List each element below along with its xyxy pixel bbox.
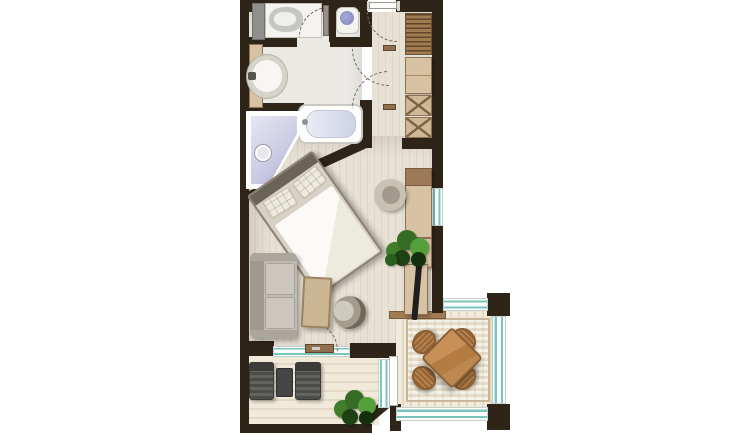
bathtub-basin xyxy=(306,110,356,138)
sofa-armrest xyxy=(250,330,297,338)
sofa-cushion xyxy=(265,263,295,295)
wall-bottom-left xyxy=(240,341,274,356)
floor-plan xyxy=(0,0,754,435)
wall-balcony-corner-tr xyxy=(487,293,510,316)
sun-lounger-back xyxy=(249,362,274,371)
potted-plant xyxy=(385,230,431,270)
lattice-cabinet-door xyxy=(405,95,432,116)
sofa-armrest xyxy=(250,253,297,261)
bathroom-door-leaf xyxy=(323,5,329,36)
plant-leaf xyxy=(359,411,373,425)
glazing-balcony-right xyxy=(492,316,506,404)
basin-faucet xyxy=(248,72,256,80)
work-table xyxy=(301,276,333,328)
wardrobe-hanging-rail xyxy=(405,13,432,55)
sofa-cushion xyxy=(265,297,295,329)
hall-door-leaf-upper xyxy=(383,45,396,51)
wall-right-lower xyxy=(432,226,443,313)
glazing-balcony-bottom xyxy=(396,407,488,421)
plant-leaf xyxy=(385,254,397,266)
glazing-balcony-top xyxy=(443,298,488,311)
wardrobe-lattice-cabinets xyxy=(405,95,432,139)
toilet-lid xyxy=(340,11,354,25)
wall-niche-divider xyxy=(329,2,336,42)
lattice-cabinet-door xyxy=(405,117,432,138)
window-right-wall xyxy=(431,188,443,226)
shower-head xyxy=(255,145,271,161)
plant-leaf xyxy=(342,409,358,425)
wall-kitchen-block xyxy=(402,138,433,149)
wardrobe-shelf-divider xyxy=(406,75,431,76)
round-lounge-chair xyxy=(333,296,366,329)
bathtub-faucet xyxy=(302,119,308,125)
entry-door-leaf xyxy=(369,2,397,9)
desk-chair-seat xyxy=(382,186,400,204)
lounger-side-table xyxy=(276,368,293,397)
wall-balcony-corner-br xyxy=(487,404,510,430)
sofa-back xyxy=(250,253,264,338)
washing-machine xyxy=(252,3,265,40)
balcony-left-frame xyxy=(389,356,398,406)
desk-top-unit xyxy=(405,168,432,186)
counter-basin-inner xyxy=(274,12,296,26)
plant-leaf xyxy=(411,252,426,267)
wall-niche-stub-right xyxy=(330,37,362,47)
wall-right-upper xyxy=(432,0,443,188)
sofa xyxy=(250,253,297,338)
sun-lounger-back xyxy=(295,362,321,371)
potted-plant xyxy=(334,390,378,430)
entry-door-frame-right xyxy=(397,1,400,11)
hall-door-leaf-lower xyxy=(383,104,396,110)
vessel-basin-inner xyxy=(252,60,282,92)
